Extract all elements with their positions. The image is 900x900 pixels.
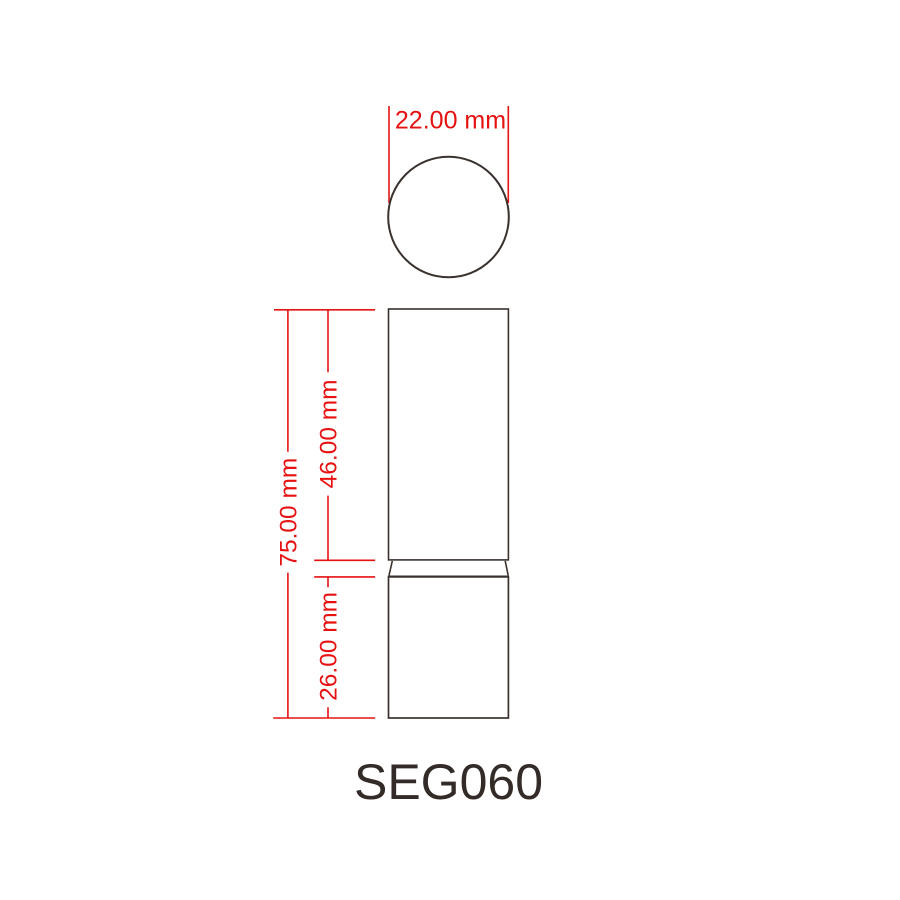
svg-text:22.00 mm: 22.00 mm xyxy=(395,107,506,135)
svg-text:26.00 mm: 26.00 mm xyxy=(316,592,343,701)
svg-text:75.00 mm: 75.00 mm xyxy=(276,458,303,567)
svg-text:46.00 mm: 46.00 mm xyxy=(316,379,343,488)
svg-text:SEG060: SEG060 xyxy=(354,754,543,810)
